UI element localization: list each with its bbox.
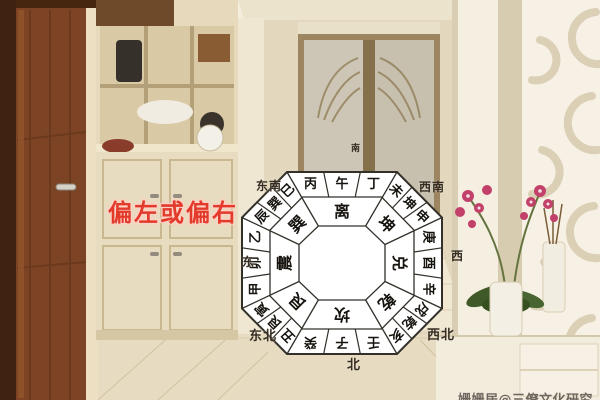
glass-door-right (375, 40, 434, 228)
wall-pillar (238, 18, 264, 334)
direction-label-southeast: 东南 (256, 180, 282, 192)
direction-label-northeast: 东北 (249, 330, 277, 343)
right-column-shadow (452, 0, 458, 342)
direction-label-northwest: 西北 (427, 329, 455, 342)
glass-door-left (304, 40, 363, 228)
door-position-annotation: 偏左或偏右 (108, 201, 238, 225)
door-edge (0, 0, 16, 400)
corridor-floor (240, 232, 468, 332)
twig-vase (543, 242, 565, 312)
counter-plate (197, 125, 223, 151)
door-transom (298, 22, 440, 36)
hallway-background (0, 0, 600, 400)
orchid-pot (490, 282, 522, 336)
direction-label-south: 南 (351, 145, 361, 154)
counter-red-bowl (102, 139, 134, 153)
shelf-box (198, 34, 230, 62)
door-handle (56, 184, 76, 190)
direction-label-southwest: 西南 (419, 181, 445, 193)
cabinet-plinth (96, 330, 238, 340)
watermark: 姗姗居@三僚文化研究院 (458, 389, 600, 400)
glass-door-stile (363, 40, 375, 228)
direction-label-west: 西 (451, 250, 464, 262)
shelf-fabric-roll (137, 100, 193, 124)
direction-label-east: 东 (242, 256, 255, 268)
cabinet-top-beam (96, 0, 174, 26)
door-highlight (18, 10, 24, 398)
shelf-black-vase (116, 40, 142, 82)
room-photo: 丙午丁离未坤申坤庚酉辛兑戌乾亥乾壬子癸坎丑艮寅艮甲卯乙震辰巽巳巽 南 东南 西南… (0, 0, 600, 400)
direction-label-north: 北 (347, 359, 361, 372)
